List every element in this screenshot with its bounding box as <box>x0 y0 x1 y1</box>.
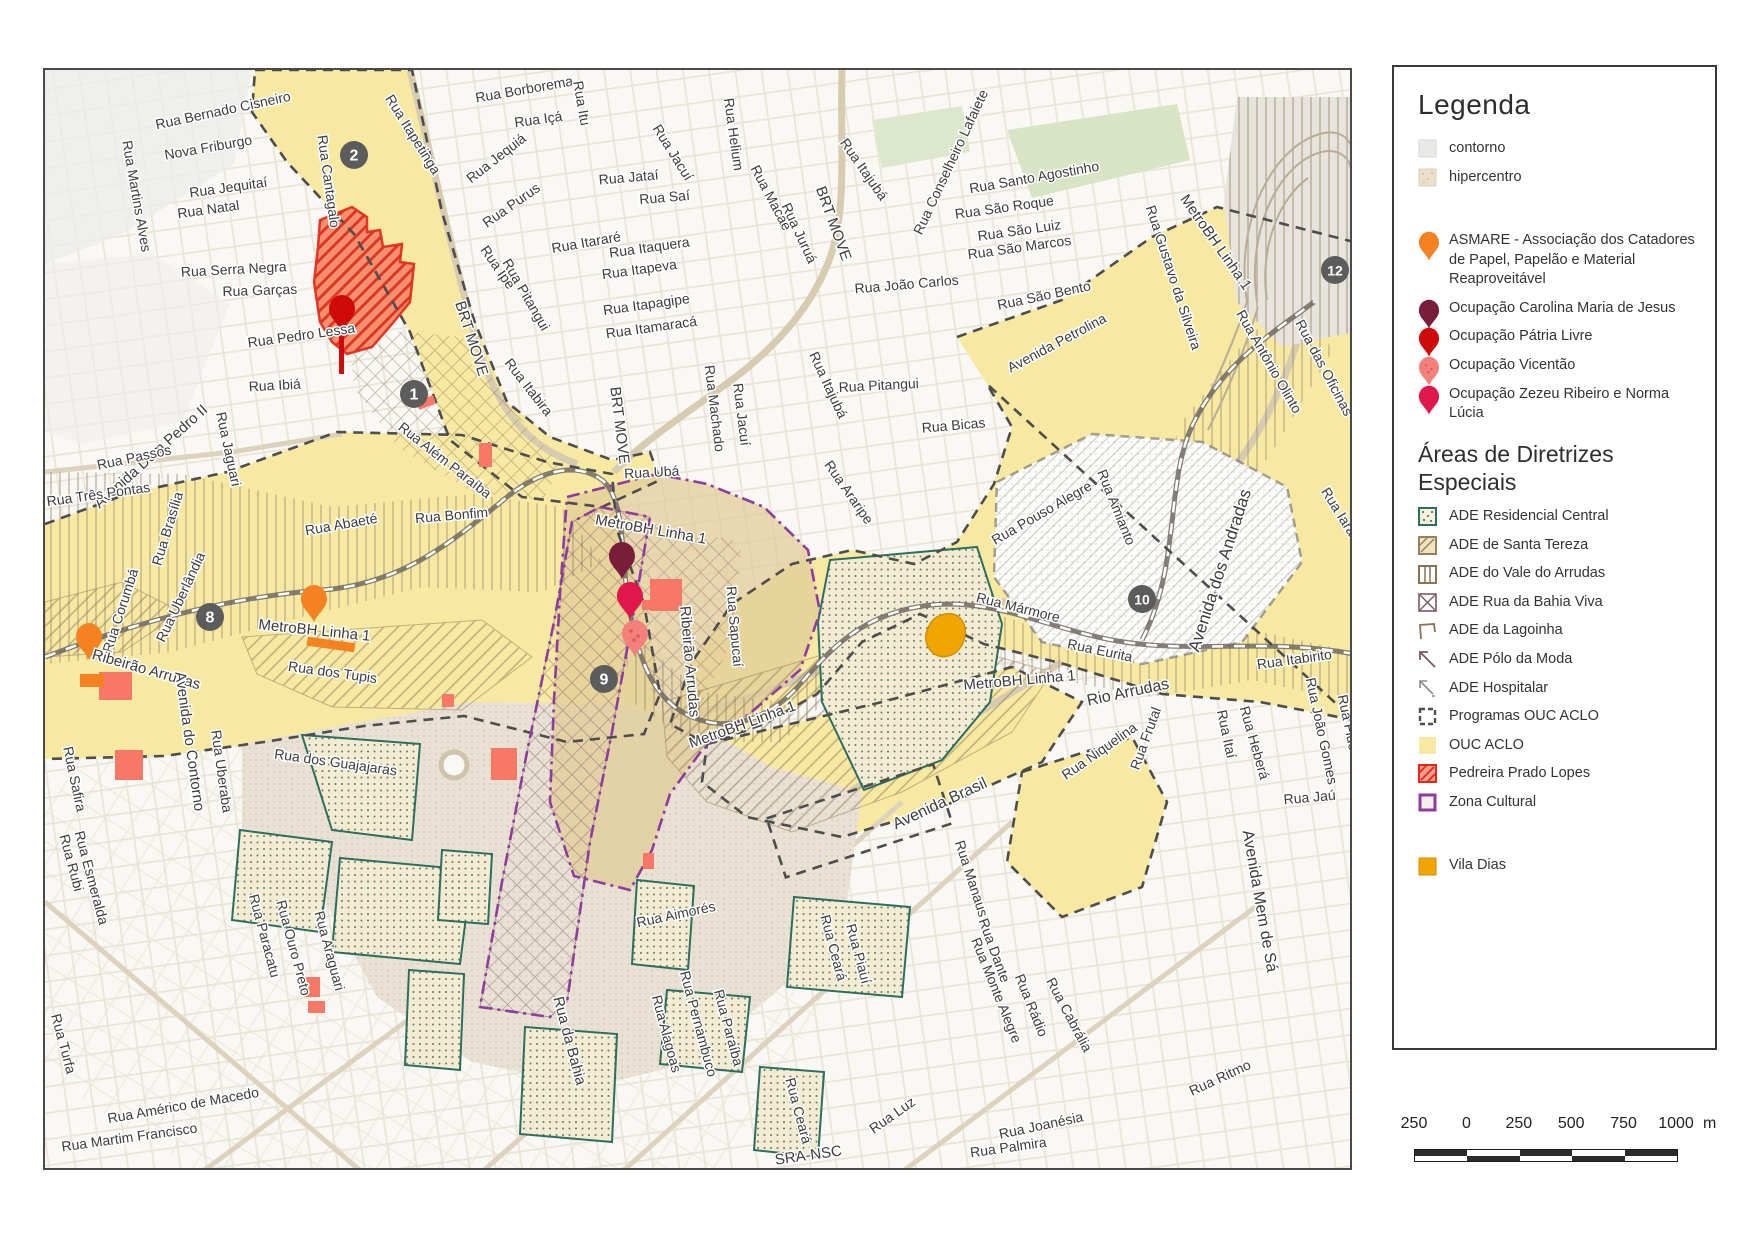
legend-pin-item-3-swatch-icon <box>1418 356 1437 375</box>
legend-item-contorno-label: contorno <box>1449 139 1505 159</box>
legend-pin-item-0: ASMARE - Associação dos Catadores de Pap… <box>1418 231 1695 290</box>
svg-text:9: 9 <box>600 672 609 689</box>
legend-spacer <box>1418 196 1695 222</box>
map-badge-12[interactable]: 12 <box>1321 256 1349 284</box>
legend-item-contorno: contorno <box>1418 139 1695 159</box>
legend-ade-item-1: ADE de Santa Tereza <box>1418 536 1695 556</box>
legend-ade-item-5-swatch-icon <box>1418 650 1437 669</box>
legend-ade-item-4-swatch-icon <box>1418 622 1437 641</box>
scale-cell <box>1467 1156 1519 1162</box>
legend-ade-item-9: Pedreira Prado Lopes <box>1418 764 1695 784</box>
legend-item-hipercentro-swatch-icon <box>1418 168 1437 187</box>
scale-cell <box>1520 1156 1572 1162</box>
legend-ade-item-10: Zona Cultural <box>1418 793 1695 813</box>
legend-ade-item-2-label: ADE do Vale do Arrudas <box>1449 564 1605 584</box>
map-badge-9[interactable]: 9 <box>590 665 618 693</box>
legend-extra-item-0-swatch-icon <box>1418 857 1437 876</box>
legend-extra-item-0: Vila Dias <box>1418 856 1695 876</box>
legend-extra-item-0-label: Vila Dias <box>1449 856 1506 876</box>
legend-pin-item-4: Ocupação Zezeu Ribeiro e Norma Lúcia <box>1418 385 1695 424</box>
legend-ade-item-9-label: Pedreira Prado Lopes <box>1449 764 1590 784</box>
legend-ade-item-2: ADE do Vale do Arrudas <box>1418 564 1695 584</box>
legend-item-hipercentro: hipercentro <box>1418 168 1695 188</box>
legend-item-contorno-swatch-icon <box>1418 139 1437 158</box>
legend-panel: Legenda contornohipercentro ASMARE - Ass… <box>1392 65 1717 1050</box>
legend-ade-item-4-label: ADE da Lagoinha <box>1449 621 1563 641</box>
legend-ade-items: ADE Residencial CentralADE de Santa Tere… <box>1418 507 1695 812</box>
legend-item-hipercentro-label: hipercentro <box>1449 168 1522 188</box>
map-badge-1[interactable]: 1 <box>400 380 428 408</box>
scale-label-0: 250 <box>1401 1115 1428 1133</box>
legend-ade-item-3: ADE Rua da Bahia Viva <box>1418 593 1695 613</box>
street-label: Rua Ibiá <box>248 376 301 395</box>
legend-ade-item-8-label: OUC ACLO <box>1449 736 1524 756</box>
legend-ade-item-3-swatch-icon <box>1418 593 1437 612</box>
svg-text:12: 12 <box>1327 263 1343 279</box>
scale-bar-unit: m <box>1703 1115 1716 1133</box>
svg-text:2: 2 <box>350 148 359 165</box>
legend-pin-item-0-swatch-icon <box>1418 231 1437 250</box>
legend-ade-item-6: ADE Hospitalar <box>1418 679 1695 699</box>
street-label: Rua Garças <box>222 281 297 300</box>
scale-label-5: 1000 <box>1658 1115 1694 1133</box>
legend-pin-item-4-swatch-icon <box>1418 385 1437 404</box>
svg-text:8: 8 <box>206 610 215 627</box>
legend-ade-item-6-swatch-icon <box>1418 679 1437 698</box>
legend-title: Legenda <box>1418 89 1695 121</box>
legend-pin-item-2: Ocupação Pátria Livre <box>1418 327 1695 347</box>
map-svg: 12891012 Rua Bernado CisneiroNova Fribur… <box>45 70 1352 1170</box>
legend-ade-item-1-swatch-icon <box>1418 536 1437 555</box>
legend-ade-item-8-swatch-icon <box>1418 736 1437 755</box>
scale-cell <box>1415 1156 1467 1162</box>
legend-ade-item-1-label: ADE de Santa Tereza <box>1449 536 1588 556</box>
legend-ade-item-5-label: ADE Pólo da Moda <box>1449 650 1572 670</box>
legend-pin-item-1-swatch-icon <box>1418 299 1437 318</box>
legend-ade-item-10-label: Zona Cultural <box>1449 793 1536 813</box>
svg-text:1: 1 <box>410 387 419 404</box>
scale-bar: 25002505007501000 m <box>1398 1103 1743 1173</box>
legend-ade-item-7: Programas OUC ACLO <box>1418 707 1695 727</box>
legend-pin-item-1: Ocupação Carolina Maria de Jesus <box>1418 299 1695 319</box>
street-label: Rua Ubá <box>624 463 680 482</box>
svg-text:10: 10 <box>1134 592 1150 608</box>
legend-ade-item-0-swatch-icon <box>1418 507 1437 526</box>
legend-pin-item-2-label: Ocupação Pátria Livre <box>1449 327 1592 347</box>
scale-label-4: 750 <box>1610 1115 1637 1133</box>
map-badge-2[interactable]: 2 <box>340 141 368 169</box>
legend-ade-item-10-swatch-icon <box>1418 793 1437 812</box>
map-canvas: 12891012 Rua Bernado CisneiroNova Fribur… <box>43 68 1352 1170</box>
legend-pin-items: ASMARE - Associação dos Catadores de Pap… <box>1418 231 1695 424</box>
map-badge-8[interactable]: 8 <box>196 603 224 631</box>
legend-ade-item-7-swatch-icon <box>1418 707 1437 726</box>
legend-ade-item-0: ADE Residencial Central <box>1418 507 1695 527</box>
map-badge-10[interactable]: 10 <box>1128 585 1156 613</box>
legend-ade-item-3-label: ADE Rua da Bahia Viva <box>1449 593 1603 613</box>
legend-spacer <box>1418 821 1695 847</box>
legend-ade-item-9-swatch-icon <box>1418 764 1437 783</box>
legend-ade-item-5: ADE Pólo da Moda <box>1418 650 1695 670</box>
legend-ade-item-8: OUC ACLO <box>1418 736 1695 756</box>
scale-cell <box>1625 1156 1677 1162</box>
legend-pin-item-3: Ocupação Vicentão <box>1418 356 1695 376</box>
legend-pin-item-3-label: Ocupação Vicentão <box>1449 356 1575 376</box>
legend-base-items: contornohipercentro <box>1418 139 1695 187</box>
legend-ade-item-2-swatch-icon <box>1418 565 1437 584</box>
legend-pin-item-0-label: ASMARE - Associação dos Catadores de Pap… <box>1449 231 1695 290</box>
legend-ade-item-7-label: Programas OUC ACLO <box>1449 707 1599 727</box>
roundabout <box>441 752 467 778</box>
legend-ade-item-4: ADE da Lagoinha <box>1418 621 1695 641</box>
legend-extra-items: Vila Dias <box>1418 856 1695 876</box>
legend-ade-title: Áreas de Diretrizes Especiais <box>1418 440 1695 498</box>
legend-pin-item-1-label: Ocupação Carolina Maria de Jesus <box>1449 299 1675 319</box>
scale-label-2: 250 <box>1505 1115 1532 1133</box>
scale-label-1: 0 <box>1462 1115 1471 1133</box>
scale-cell <box>1572 1156 1624 1162</box>
legend-pin-item-4-label: Ocupação Zezeu Ribeiro e Norma Lúcia <box>1449 385 1695 424</box>
scale-label-3: 500 <box>1558 1115 1585 1133</box>
legend-ade-item-0-label: ADE Residencial Central <box>1449 507 1609 527</box>
legend-pin-item-2-swatch-icon <box>1418 327 1437 346</box>
legend-ade-item-6-label: ADE Hospitalar <box>1449 679 1548 699</box>
scale-bar-graphic <box>1414 1149 1678 1162</box>
